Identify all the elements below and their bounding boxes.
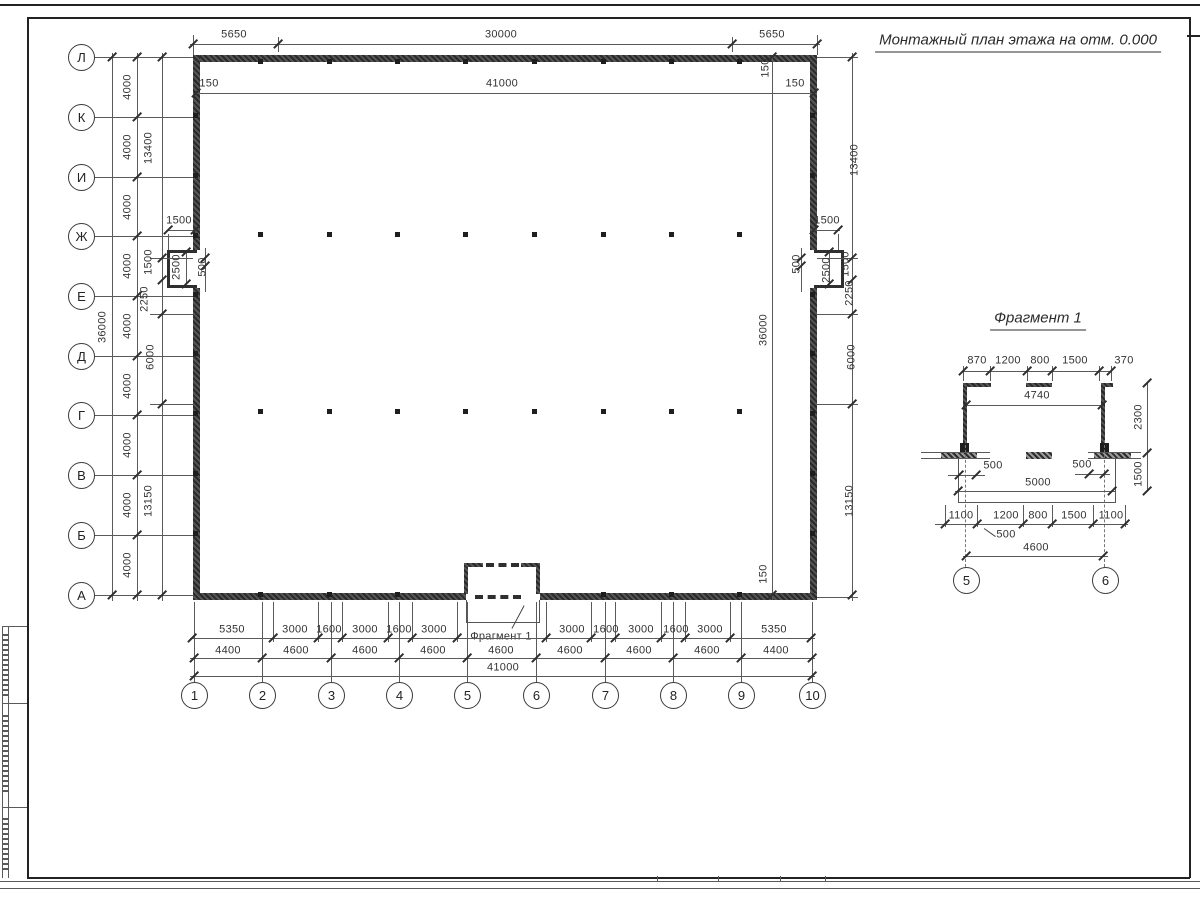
dim-label: 4740 (1024, 391, 1050, 402)
vestibule-wall-right (536, 563, 540, 594)
column-mark (463, 59, 468, 64)
dim-label: 4600 (694, 646, 720, 657)
dim-line (186, 252, 187, 284)
dim-label: 370 (1114, 356, 1133, 367)
column-mark (669, 232, 674, 237)
axis-circle-row-Л: Л (68, 44, 95, 71)
dim-label: 1600 (386, 625, 412, 636)
dim-label: 36000 (98, 311, 109, 343)
dim-label: 3000 (352, 625, 378, 636)
axis-circle-col-7: 7 (592, 682, 619, 709)
wall-left-lower (193, 288, 200, 600)
column-mark (669, 59, 674, 64)
dim-label: 4600 (488, 646, 514, 657)
column-mark (463, 409, 468, 414)
column-mark (737, 409, 742, 414)
column-mark (193, 471, 198, 476)
dim-label: 13150 (845, 485, 856, 517)
dim-label: 4000 (123, 74, 134, 100)
column-mark (395, 409, 400, 414)
sheet-outer-border-top (0, 4, 1200, 6)
dim-line (935, 524, 1128, 525)
dim-label: 4600 (352, 646, 378, 657)
dim-line (838, 234, 839, 250)
dim-label: 4400 (215, 646, 241, 657)
dim-label: 5350 (761, 625, 787, 636)
dim-label: 4000 (123, 253, 134, 279)
column-mark (810, 531, 815, 536)
dim-label: 150 (785, 79, 804, 90)
fragment-axis-circle-6: 6 (1092, 567, 1119, 594)
dim-line (467, 602, 468, 682)
dim-label: 2500 (822, 257, 833, 283)
dim-label: 1500 (1134, 461, 1145, 487)
frame-right (1189, 17, 1191, 878)
dim-label: 1200 (993, 511, 1019, 522)
stamp-side-text (3, 632, 8, 696)
axis-circle-row-Ж: Ж (68, 223, 95, 250)
dim-label: 1600 (316, 625, 342, 636)
dim-label: 1500 (841, 251, 852, 277)
dim-line (150, 404, 193, 405)
column-mark (669, 592, 674, 597)
axis-circle-col-4: 4 (386, 682, 413, 709)
dim-line (1147, 453, 1148, 491)
column-mark (532, 59, 537, 64)
dim-line (262, 602, 263, 682)
axis-circle-row-А: А (68, 582, 95, 609)
dim-label: 5650 (221, 30, 247, 41)
dim-label: 4600 (283, 646, 309, 657)
dim-label: 5650 (759, 30, 785, 41)
dim-line (196, 93, 814, 94)
drawing-sheet: Монтажный план этажа на отм. 0.000 Фрагм… (0, 0, 1200, 900)
column-mark (669, 409, 674, 414)
frame-top (27, 17, 1190, 19)
wall-bottom-right (540, 593, 817, 600)
dim-label: 500 (1072, 460, 1091, 471)
dim-line (168, 234, 169, 250)
dim-label: 150 (761, 58, 772, 77)
dim-label: 4600 (1023, 543, 1049, 554)
column-mark (810, 113, 815, 118)
dim-label: 1500 (144, 249, 155, 275)
dim-line (95, 177, 193, 178)
column-mark (395, 592, 400, 597)
column-mark (532, 409, 537, 414)
stamp-side-text (3, 712, 8, 792)
vestibule-stub-right (521, 563, 540, 567)
dim-line (921, 458, 990, 459)
dim-label: 1100 (1099, 511, 1124, 522)
dim-label: 5000 (1025, 478, 1051, 489)
dim-label: 6000 (146, 344, 157, 370)
dim-label: 4000 (123, 313, 134, 339)
dim-label: 3000 (628, 625, 654, 636)
dim-line (194, 602, 195, 682)
dim-line (399, 602, 400, 682)
fragment-centerline-5 (965, 440, 966, 567)
dim-label: 2250 (845, 280, 856, 306)
dim-line (190, 44, 820, 45)
dim-line (966, 405, 1102, 406)
axis-circle-row-Г: Г (68, 402, 95, 429)
column-mark (193, 531, 198, 536)
column-mark (737, 232, 742, 237)
dim-label: 1500 (166, 216, 192, 227)
dim-label: 4600 (626, 646, 652, 657)
axis-circle-col-8: 8 (660, 682, 687, 709)
axis-circle-col-6: 6 (523, 682, 550, 709)
fragment-title: Фрагмент 1 (990, 310, 1086, 331)
dim-line (95, 475, 193, 476)
dim-line (95, 415, 193, 416)
dim-line (963, 371, 1112, 372)
vestibule-wall-left (464, 563, 468, 594)
fragment-callout-label: Фрагмент 1 (470, 632, 532, 643)
titleblock-divider (718, 876, 719, 881)
fragment-centerline-6 (1104, 440, 1105, 567)
wall-top (193, 55, 817, 62)
column-mark (193, 292, 198, 297)
dim-label: 3000 (559, 625, 585, 636)
column-mark (327, 59, 332, 64)
titleblock-divider (780, 876, 781, 881)
column-mark (327, 232, 332, 237)
dim-line (193, 35, 194, 55)
dim-label: 36000 (759, 314, 770, 346)
dim-line (852, 53, 853, 601)
dim-line (162, 53, 163, 601)
dim-label: 1600 (663, 625, 689, 636)
vestibule-porch-outline (466, 600, 540, 623)
column-mark (601, 592, 606, 597)
stamp-strip-divider (2, 807, 27, 808)
axis-circle-row-Б: Б (68, 522, 95, 549)
column-mark (810, 173, 815, 178)
dim-line (137, 53, 138, 601)
dim-line (331, 602, 332, 682)
column-mark (601, 232, 606, 237)
column-mark (810, 411, 815, 416)
dim-line (948, 475, 985, 476)
dim-label: 4000 (123, 194, 134, 220)
stamp-strip-inner (8, 626, 9, 878)
dim-label: 5350 (219, 625, 245, 636)
column-mark (327, 409, 332, 414)
vestibule-dashed-opening-bottom (475, 595, 521, 599)
axis-circle-col-9: 9 (728, 682, 755, 709)
column-mark (193, 233, 198, 238)
dim-label: 3000 (697, 625, 723, 636)
dim-line (673, 602, 674, 682)
dim-line (812, 602, 813, 682)
column-mark (327, 592, 332, 597)
titleblock-divider (825, 876, 826, 881)
dim-line (741, 602, 742, 682)
fragment-stub-right (1101, 383, 1113, 387)
axis-circle-row-К: К (68, 104, 95, 131)
axis-circle-col-1: 1 (181, 682, 208, 709)
dim-line (190, 638, 815, 639)
dim-label: 150 (759, 564, 770, 583)
axis-circle-row-Д: Д (68, 343, 95, 370)
fragment-500-leader (984, 528, 996, 537)
column-mark (810, 471, 815, 476)
axis-circle-row-Е: Е (68, 283, 95, 310)
dim-label: 1100 (949, 511, 974, 522)
titleblock-second-line (0, 888, 1200, 889)
column-mark (810, 292, 815, 297)
dim-label: 4000 (123, 492, 134, 518)
dim-line (112, 53, 113, 601)
dim-label: 4600 (420, 646, 446, 657)
axis-circle-row-В: В (68, 462, 95, 489)
dim-line (772, 55, 773, 600)
dim-label: 1500 (1061, 511, 1087, 522)
dim-line (190, 658, 815, 659)
column-mark (737, 59, 742, 64)
dim-label: 1600 (593, 625, 619, 636)
dim-label: 4000 (123, 432, 134, 458)
fragment-foundation-middle (1026, 452, 1052, 459)
drawing-title: Монтажный план этажа на отм. 0.000 (875, 32, 1161, 53)
dim-label: 1500 (1062, 356, 1088, 367)
vestibule-dashed-opening-top (486, 563, 519, 567)
dim-label: 13400 (144, 132, 155, 164)
dim-label: 800 (1028, 511, 1047, 522)
dim-line (1088, 458, 1141, 459)
dim-label: 500 (792, 254, 803, 273)
dim-label: 6000 (847, 344, 858, 370)
column-mark (395, 232, 400, 237)
column-mark (601, 409, 606, 414)
dim-label: 4400 (763, 646, 789, 657)
column-mark (258, 232, 263, 237)
dim-label: 500 (983, 461, 1002, 472)
dim-label: 1200 (995, 356, 1021, 367)
dim-line (95, 535, 193, 536)
dim-label: 2300 (1134, 404, 1145, 430)
column-mark (532, 232, 537, 237)
dim-label: 41000 (486, 79, 518, 90)
dim-line (1147, 383, 1148, 453)
dim-label: 1500 (814, 216, 840, 227)
axis-circle-col-2: 2 (249, 682, 276, 709)
dim-label: 41000 (487, 663, 519, 674)
dim-label: 800 (1030, 356, 1049, 367)
dim-line (95, 236, 193, 237)
dim-line (963, 556, 1108, 557)
dim-label: 150 (199, 79, 218, 90)
dim-line (605, 602, 606, 682)
stamp-side-text (3, 815, 8, 870)
titleblock-top-line (0, 881, 1200, 882)
dim-line (536, 602, 537, 682)
frame-corner-notch (1187, 35, 1200, 37)
dim-label: 870 (967, 356, 986, 367)
dim-label: 500 (996, 530, 1015, 541)
dim-label: 4000 (123, 552, 134, 578)
axis-circle-col-3: 3 (318, 682, 345, 709)
column-mark (258, 59, 263, 64)
fragment-stub-left (963, 383, 991, 387)
frame-bottom (27, 877, 1190, 879)
dim-line (955, 491, 1115, 492)
axis-circle-row-И: И (68, 164, 95, 191)
dim-line (190, 676, 815, 677)
frame-left (27, 17, 29, 878)
column-mark (258, 592, 263, 597)
dim-line (817, 35, 818, 55)
titleblock-divider (657, 876, 658, 881)
dim-line (150, 314, 193, 315)
wall-right-lower (810, 288, 817, 600)
dim-label: 13150 (144, 485, 155, 517)
dim-label: 3000 (282, 625, 308, 636)
dim-label: 4000 (123, 134, 134, 160)
axis-circle-col-5: 5 (454, 682, 481, 709)
column-mark (737, 592, 742, 597)
vestibule-stub-left (464, 563, 483, 567)
column-mark (258, 409, 263, 414)
column-mark (463, 232, 468, 237)
stamp-strip-divider (2, 703, 27, 704)
dim-line (1088, 452, 1141, 453)
fragment-axis-circle-5: 5 (953, 567, 980, 594)
dim-label: 2500 (172, 254, 183, 280)
column-mark (601, 59, 606, 64)
dim-line (921, 452, 990, 453)
column-mark (193, 411, 198, 416)
dim-label: 4600 (557, 646, 583, 657)
column-mark (810, 351, 815, 356)
dim-label: 13400 (850, 144, 861, 176)
column-mark (193, 113, 198, 118)
dim-label: 3000 (421, 625, 447, 636)
column-mark (193, 173, 198, 178)
stamp-strip-divider (2, 626, 27, 627)
dim-label: 2250 (140, 286, 151, 312)
fragment-wall-middle (1026, 383, 1052, 387)
dim-label: 30000 (485, 30, 517, 41)
dim-line (95, 117, 193, 118)
column-mark (395, 59, 400, 64)
dim-label: 4000 (123, 373, 134, 399)
dim-label: 500 (198, 257, 209, 276)
column-mark (193, 351, 198, 356)
axis-circle-col-10: 10 (799, 682, 826, 709)
